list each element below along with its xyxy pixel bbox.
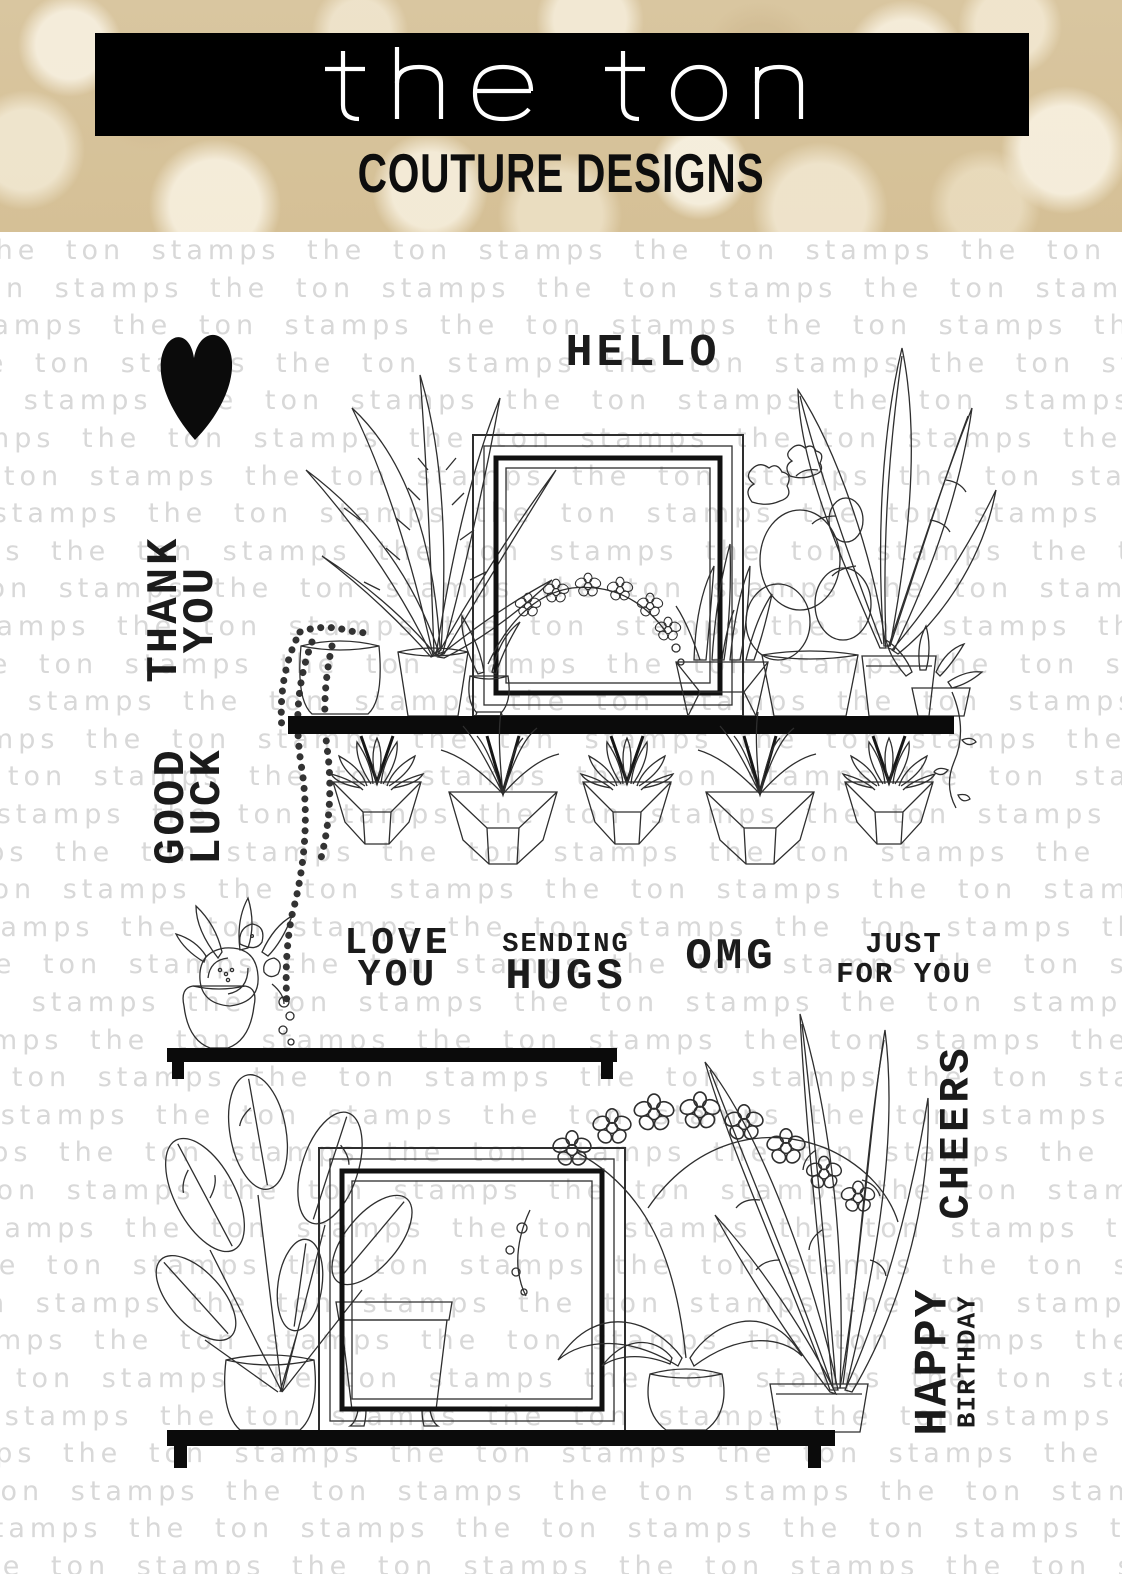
- picture-frame-top: [473, 435, 743, 716]
- header-bokeh-band: the ton COUTURE DESIGNS: [0, 0, 1122, 232]
- heart-stamp: [150, 330, 242, 446]
- top-shelf: [288, 716, 954, 734]
- bottom-shelf-scene-illustration: [150, 1000, 1010, 1480]
- stamp-sentiment-happy-birthday: HAPPY BIRTHDAY: [913, 1282, 980, 1442]
- brand-banner: the ton: [95, 33, 1029, 136]
- large-leaf-plant-top: [796, 348, 996, 716]
- picture-frame-bottom: [319, 1148, 625, 1432]
- watermark-row: the ton stamps the ton stamps the ton st…: [0, 1478, 1122, 1505]
- stamp-sentiment-just-for-you: JUST FOR YOU: [824, 930, 984, 991]
- stamp-sentiment-cheers: CHEERS: [933, 1045, 981, 1220]
- watermark-row: the ton stamps the ton stamps the ton st…: [0, 237, 1122, 264]
- aloe-plant: [676, 544, 772, 716]
- stamp-sentiment-thank-you: THANK YOU: [147, 534, 219, 684]
- large-leaf-plant-bottom: [705, 1014, 928, 1432]
- stamp-sentiment-omg: OMG: [671, 932, 791, 982]
- stamp-sentiment-hello: HELLO: [553, 328, 733, 379]
- brand-subtitle: COUTURE DESIGNS: [146, 142, 976, 204]
- watermark-row: the ton stamps the ton stamps the ton st…: [0, 275, 1122, 302]
- bottom-shelf: [167, 1430, 835, 1446]
- watermark-row: the ton stamps the ton stamps the ton st…: [0, 1515, 1122, 1542]
- stamp-sentiment-sending-hugs: SENDING HUGS: [486, 932, 646, 995]
- hanging-planters: [331, 712, 935, 864]
- palm-plant: [306, 375, 556, 716]
- stamp-sheet-page: the ton stamps the ton stamps the ton st…: [0, 0, 1122, 1574]
- brand-logo: [95, 33, 1029, 136]
- rubber-plant: [142, 1070, 427, 1430]
- stamp-sentiment-good-luck: GOOD LUCK: [154, 741, 226, 871]
- stamp-sentiment-love-you: LOVE YOU: [318, 928, 478, 993]
- watermark-row: the ton stamps the ton stamps the ton st…: [0, 1553, 1122, 1574]
